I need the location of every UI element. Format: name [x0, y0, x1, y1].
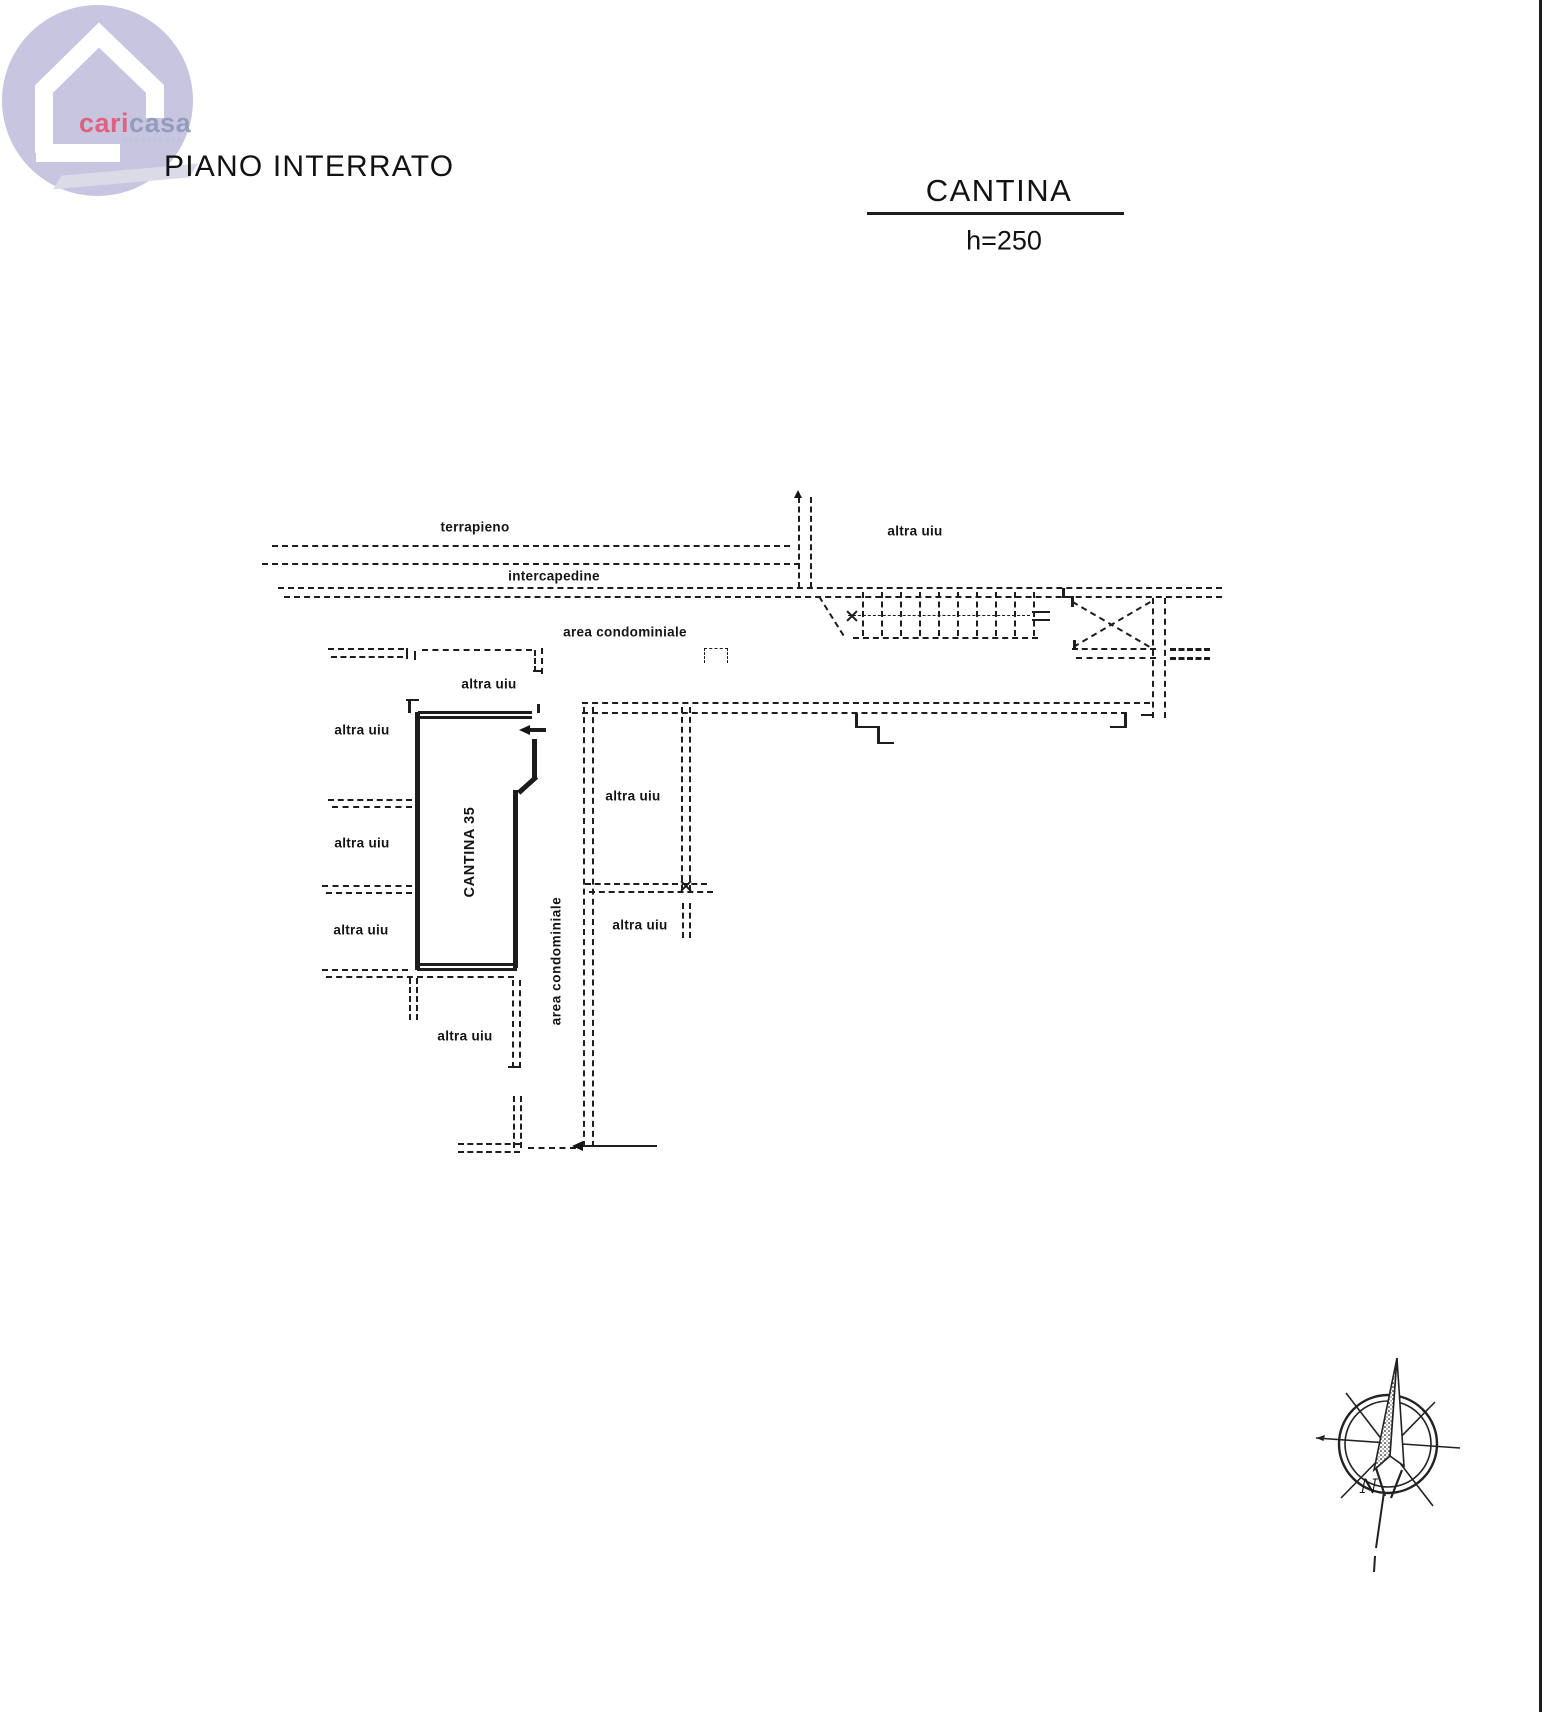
- compass-rose: N: [1288, 1330, 1498, 1580]
- altra-uiu-label-right-1: altra uiu: [605, 789, 660, 804]
- room-right-wall-upper: [532, 739, 537, 778]
- caricasa-wordmark: caricasa: [79, 108, 191, 139]
- floor-plan-page: caricasa PIANO INTERRATO CANTINA h=250 t…: [0, 0, 1566, 1712]
- stair-tread: [900, 592, 902, 636]
- corridor-line-upper: [582, 702, 1150, 704]
- altra-uiu-label-left-3: altra uiu: [333, 923, 388, 938]
- intercapedine-lower-line-2: [284, 596, 1222, 598]
- intercapedine-upper-line: [262, 563, 800, 565]
- room-top-wall-2: [418, 716, 532, 719]
- room-bottom-outer-dash: [326, 976, 514, 978]
- intercapedine-label: intercapedine: [508, 569, 600, 584]
- bottom-edge-dash-3: [528, 1147, 576, 1149]
- strip-hook: [508, 1066, 520, 1068]
- terrapieno-label: terrapieno: [440, 520, 509, 535]
- below-room-vert-2: [416, 978, 418, 1020]
- strip-vert-2b: [520, 1096, 522, 1148]
- below-room-vert-1: [409, 978, 411, 1020]
- strip-vert-1b: [519, 980, 521, 1068]
- upper-boundary-bracket-2: [414, 651, 416, 660]
- room-title-underline: [867, 212, 1124, 215]
- boundary-vertical-2: [810, 497, 812, 588]
- stair-tread: [976, 592, 978, 636]
- intercapedine-lower-line-1: [278, 587, 1222, 589]
- rightroom-left-wall-1: [583, 707, 585, 1147]
- upper-right-bracket-1: [534, 650, 536, 672]
- stair-walk-line-end-2: [1032, 619, 1050, 621]
- right-extension-line-1: [1170, 648, 1210, 651]
- bottom-arrow-head: [572, 1141, 583, 1151]
- left-divider-3a: [322, 969, 408, 971]
- room-corner-v: [408, 701, 411, 713]
- area-condominiale-vertical-label: area condominiale: [549, 897, 564, 1026]
- shaft-right-wall-1: [1152, 598, 1154, 718]
- stair-tread: [957, 592, 959, 636]
- rightroom-lower-wall-2: [689, 903, 691, 938]
- upper-boundary-dash-2: [331, 656, 403, 658]
- rightroom-right-wall-2: [689, 707, 691, 891]
- corridor-step-h2: [877, 742, 894, 744]
- stair-walk-line: [848, 615, 1030, 616]
- upper-boundary-dash-3: [422, 649, 532, 651]
- altra-uiu-label-top: altra uiu: [887, 524, 942, 539]
- rightroom-left-wall-2: [592, 707, 594, 1147]
- stair-tread: [881, 592, 883, 636]
- boundary-vertical-1: [798, 497, 800, 588]
- shaft-step-v3: [1073, 640, 1076, 650]
- room-right-wall-jog: [517, 775, 538, 794]
- room-left-wall: [415, 712, 420, 970]
- upper-boundary-bracket-1: [406, 648, 408, 659]
- room-top-wall-hook: [537, 704, 540, 713]
- room-name-label: CANTINA 35: [462, 807, 478, 898]
- rightroom-bottom-2: [589, 891, 713, 893]
- stair-tread: [995, 592, 997, 636]
- rightroom-lower-wall-1: [682, 903, 684, 938]
- compass-west-arrow: [1316, 1435, 1325, 1441]
- rightroom-right-wall-1: [681, 707, 683, 891]
- strip-vert-1a: [512, 980, 514, 1068]
- bottom-arrow-tail: [583, 1145, 657, 1147]
- logo-tagline-blur: [123, 137, 181, 142]
- small-duct-symbol: [704, 648, 728, 663]
- boundary-arrow-up: [794, 490, 802, 498]
- stair-tread: [938, 592, 940, 636]
- room-bottom-wall-2: [417, 968, 517, 971]
- area-condominiale-label: area condominiale: [563, 625, 687, 640]
- stair-bottom-edge: [853, 637, 1038, 639]
- stair-tread: [862, 592, 864, 636]
- terrapieno-boundary-line: [272, 545, 790, 547]
- right-extension-line-2: [1170, 657, 1210, 660]
- strip-vert-2a: [513, 1096, 515, 1148]
- altra-uiu-label-above-room: altra uiu: [461, 677, 516, 692]
- north-letter: N: [1359, 1474, 1379, 1498]
- altra-uiu-label-right-2: altra uiu: [612, 918, 667, 933]
- upper-boundary-dash-1: [328, 648, 404, 650]
- left-divider-2b: [326, 892, 412, 894]
- left-divider-1a: [328, 799, 412, 801]
- altra-uiu-label-left-1: altra uiu: [334, 723, 389, 738]
- room-top-wall-1: [418, 711, 532, 714]
- corridor-end-bracket-h: [1110, 726, 1125, 728]
- stair-break-line: [818, 596, 844, 636]
- corridor-step-h1: [855, 726, 879, 728]
- bottom-edge-dash-1: [458, 1143, 520, 1145]
- floor-title: PIANO INTERRATO: [164, 150, 454, 184]
- bottom-edge-dash-2: [458, 1151, 520, 1153]
- room-height-note: h=250: [966, 226, 1042, 257]
- stair-tread: [1033, 592, 1035, 636]
- shaft-step-v2: [1071, 596, 1074, 607]
- shaft-bottom-line-2: [1076, 657, 1156, 659]
- room-right-wall-lower: [513, 790, 518, 968]
- shaft-bottom-line-1: [1072, 648, 1156, 650]
- brand-casa: casa: [129, 108, 191, 138]
- compass-south-tail: [1374, 1492, 1384, 1572]
- stair-walk-line-end-1: [1032, 611, 1050, 613]
- room-bottom-wall-1: [417, 963, 517, 966]
- left-divider-2a: [322, 885, 412, 887]
- stair-tread: [919, 592, 921, 636]
- corridor-step-v1: [855, 713, 858, 727]
- altra-uiu-label-bottom: altra uiu: [437, 1029, 492, 1044]
- left-divider-1b: [332, 806, 412, 808]
- altra-uiu-label-left-2: altra uiu: [334, 836, 389, 851]
- shaft-wall-hook: [1141, 714, 1153, 716]
- stair-tread: [1014, 592, 1016, 636]
- room-title: CANTINA: [926, 173, 1073, 209]
- shaft-right-wall-2: [1164, 598, 1166, 718]
- brand-cari: cari: [79, 108, 129, 138]
- upper-right-bracket-foot: [533, 670, 542, 672]
- scan-page-border: [1539, 0, 1542, 1712]
- door-arrow-tail: [529, 728, 546, 732]
